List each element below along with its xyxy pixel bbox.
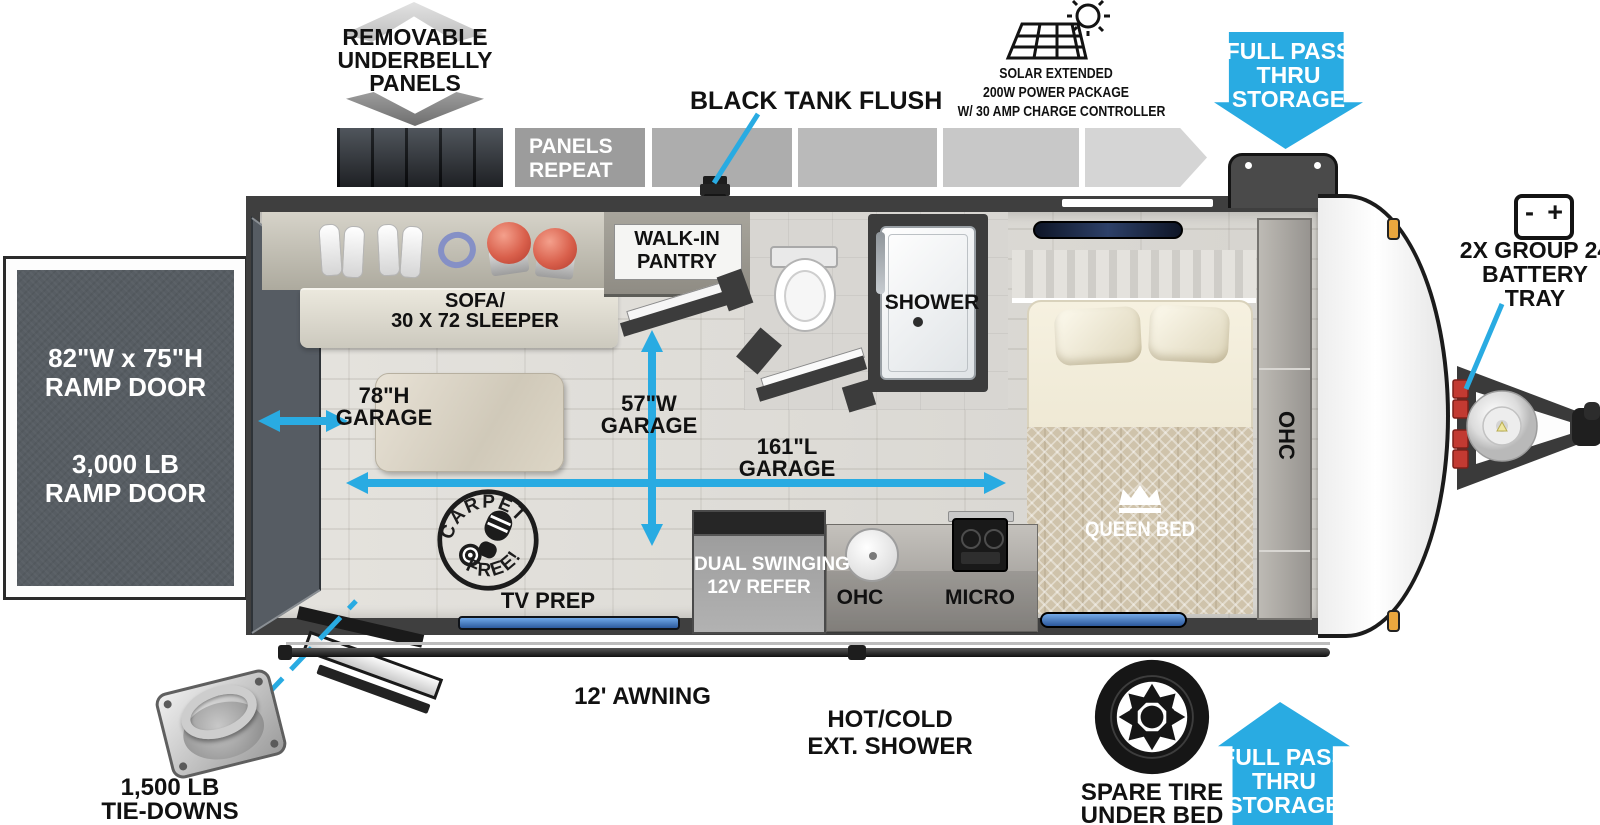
- awning-joint: [848, 645, 866, 660]
- awning-label: 12' AWNING: [560, 684, 725, 710]
- bolt-icon: [163, 699, 173, 709]
- queen-bed-label: QUEEN BED: [1061, 518, 1219, 541]
- spare-tire-label: SPARE TIRE UNDER BED: [1072, 782, 1232, 825]
- bolt-icon: [269, 739, 279, 749]
- garage-length-label: 161"L GARAGE: [733, 436, 841, 480]
- awning-bar: [286, 648, 1330, 657]
- ext-shower-label: HOT/COLD EXT. SHOWER: [800, 707, 980, 761]
- awning-rail: [286, 642, 1330, 645]
- garage-height-label: 78"H GARAGE: [330, 385, 438, 429]
- sofa-label: SOFA/ 30 X 72 SLEEPER: [360, 291, 590, 331]
- awning-end-cap: [278, 645, 292, 660]
- pass-thru-bottom-label: FULL PASS THRU STORAGE: [1218, 746, 1350, 818]
- pantry-label: WALK-IN PANTRY: [614, 228, 740, 274]
- shower-label: SHOWER: [876, 291, 988, 314]
- tv-prep-label: TV PREP: [470, 589, 626, 613]
- micro-label: MICRO: [940, 586, 1020, 609]
- spare-tire-icon: [1093, 658, 1211, 776]
- ohc-wardrobe-label: OHC: [1272, 400, 1298, 470]
- kitchen-ohc-label: OHC: [830, 586, 890, 609]
- tie-downs-label: 1,500 LB TIE-DOWNS: [90, 776, 250, 824]
- refer-label: DUAL SWINGING 12V REFER: [694, 554, 824, 600]
- bolt-icon: [178, 762, 188, 772]
- bolt-icon: [254, 677, 264, 687]
- floorplan-diagram: REMOVABLE UNDERBELLY PANELS PANELS REPEA…: [0, 0, 1600, 825]
- garage-width-label: 57"W GARAGE: [595, 393, 703, 437]
